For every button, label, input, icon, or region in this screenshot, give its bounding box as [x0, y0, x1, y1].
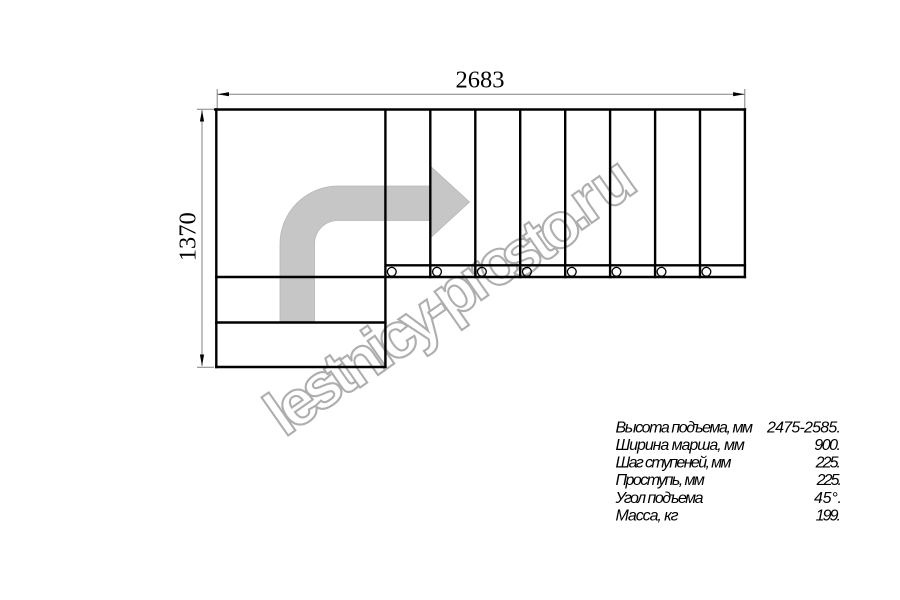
svg-text:Высота подъема, мм: Высота подъема, мм	[616, 419, 754, 436]
svg-text:Масса, кг: Масса, кг	[616, 508, 679, 525]
svg-text:2683: 2683	[456, 67, 505, 94]
svg-text:Проступь, мм: Проступь, мм	[616, 472, 705, 489]
svg-text:Шаг ступеней, мм: Шаг ступеней, мм	[616, 454, 732, 471]
svg-text:Ширина марша, мм: Ширина марша, мм	[616, 437, 745, 454]
svg-text:225.: 225.	[815, 454, 841, 471]
svg-text:Угол подъема: Угол подъема	[615, 490, 704, 507]
svg-text:2475-2585.: 2475-2585.	[766, 419, 841, 436]
svg-text:900.: 900.	[814, 437, 841, 454]
svg-text:199.: 199.	[816, 508, 841, 525]
svg-text:225.: 225.	[816, 472, 842, 489]
svg-text:1370: 1370	[175, 212, 202, 261]
svg-text:45°.: 45°.	[814, 490, 842, 507]
